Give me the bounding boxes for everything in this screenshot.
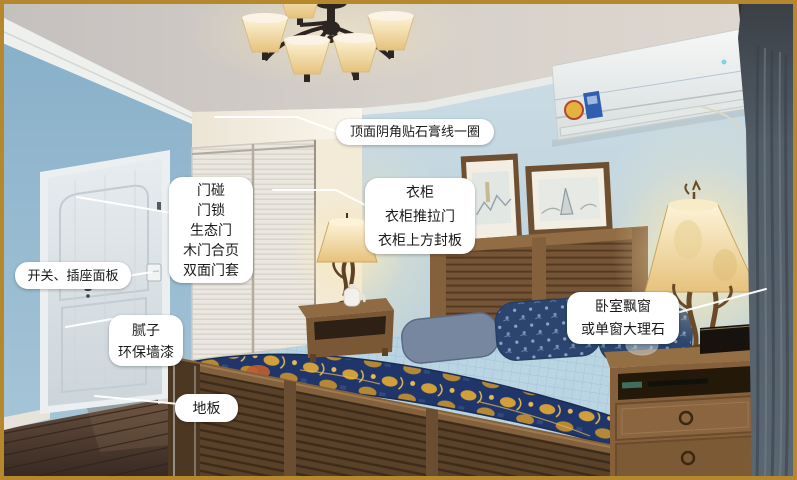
annotation-wardrobe: 衣柜 衣柜推拉门 衣柜上方封板: [365, 178, 475, 254]
annotation-switch-socket: 开关、插座面板: [15, 262, 131, 289]
annotation-door-hardware: 门碰 门锁 生态门 木门合页 双面门套: [169, 177, 253, 283]
annotation-line: 衣柜上方封板: [378, 228, 462, 252]
annotation-line: 卧室飘窗: [595, 295, 651, 318]
annotation-bay-window: 卧室飘窗 或单窗大理石: [567, 292, 679, 344]
annotation-line: 衣柜: [406, 180, 434, 204]
annotation-line: 门锁: [197, 200, 225, 220]
ac-indicator-light: [722, 60, 727, 65]
annotation-ceiling-molding: 顶面阴角贴石膏线一圈: [336, 119, 494, 145]
annotation-line: 或单窗大理石: [581, 318, 665, 341]
annotation-line: 顶面阴角贴石膏线一圈: [350, 122, 480, 142]
annotation-line: 衣柜推拉门: [385, 204, 455, 228]
annotation-line: 生态门: [190, 220, 232, 240]
annotation-line: 腻子: [132, 319, 160, 341]
annotation-line: 地板: [193, 398, 221, 418]
annotation-line: 木门合页: [183, 240, 239, 260]
annotation-line: 环保墙漆: [118, 341, 174, 363]
annotation-floor: 地板: [175, 394, 238, 422]
dark-box: [700, 324, 752, 354]
annotation-line: 门碰: [197, 180, 225, 200]
annotated-bedroom-diagram: 顶面阴角贴石膏线一圈 门碰 门锁 生态门 木门合页 双面门套 开关、插座面板 腻…: [0, 0, 797, 480]
annotation-wall-paint: 腻子 环保墙漆: [109, 315, 183, 366]
framed-picture-right: [525, 162, 613, 236]
annotation-line: 开关、插座面板: [27, 266, 118, 286]
annotation-line: 双面门套: [183, 260, 239, 280]
